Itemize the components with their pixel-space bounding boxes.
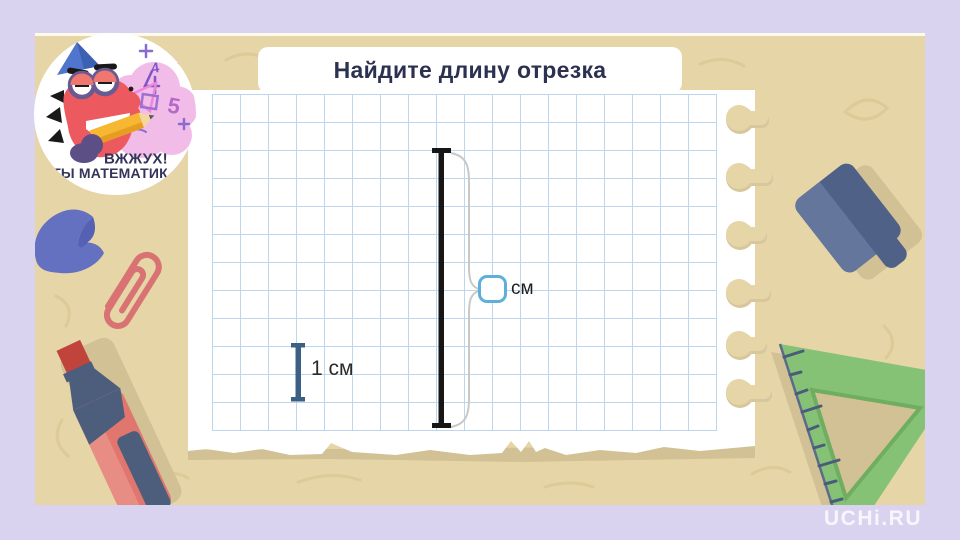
mascot-badge: 5: [34, 33, 196, 195]
app-frame: см 1 см Найдите длину отрезка 5: [0, 0, 960, 540]
glasses: [70, 70, 117, 97]
answer-input[interactable]: [478, 275, 507, 303]
scale-label: 1 см: [311, 357, 353, 381]
badge-slogan-line2: ТЫ МАТЕМАТИК: [52, 165, 168, 181]
page-title: Найдите длину отрезка: [334, 57, 607, 84]
brand-watermark: UCHi.RU: [824, 507, 922, 531]
title-card: Найдите длину отрезка: [258, 47, 682, 93]
unit-label: см: [511, 278, 534, 300]
doodle-four: 4: [150, 59, 160, 76]
paw: [81, 134, 103, 156]
squared-grid: [212, 94, 717, 431]
